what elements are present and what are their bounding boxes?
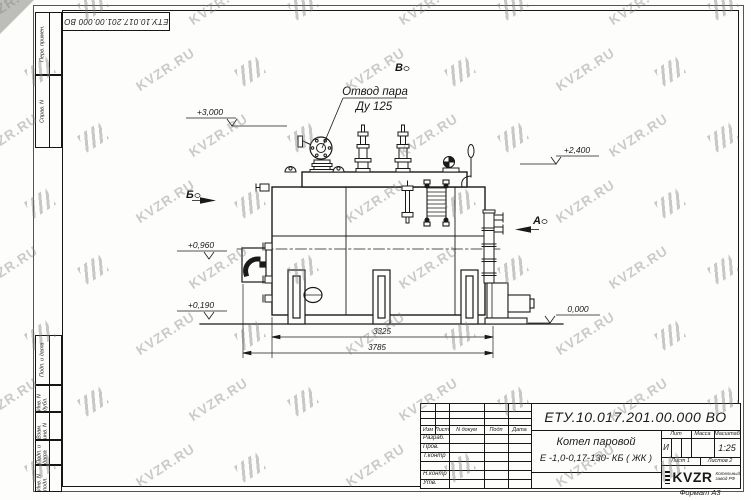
elevation-mark-0190 <box>177 311 227 319</box>
tb-row-nkontr: Н.контр <box>423 471 447 477</box>
tb-col-ndokum: N докум <box>449 425 484 434</box>
elevation-mark-0000 <box>528 315 600 323</box>
section-marker-a <box>515 220 547 233</box>
tb-lit-value: И <box>661 438 671 457</box>
tb-name-line1: Котел паровой <box>531 433 661 451</box>
tb-lit-header: Лит <box>661 430 691 438</box>
tb-row-utv: Утв. <box>423 480 437 486</box>
annotation-text: Отвод пара <box>342 86 408 98</box>
tb-col-izm: Изм <box>421 425 435 434</box>
support-legs <box>288 270 478 324</box>
tb-scale-header: Масштаб <box>714 430 740 438</box>
format-label: Формат А3 <box>630 488 750 497</box>
annotation-text: Ду 125 <box>354 101 393 113</box>
tb-col-data: Дата <box>508 425 531 434</box>
elevation-mark-3000 <box>186 118 287 126</box>
grid-line <box>681 438 682 457</box>
section-letter: Б <box>186 189 194 201</box>
elevation-value: 0,000 <box>567 304 589 314</box>
elevation-value: +3,000 <box>197 107 224 117</box>
steam-outlet-valve <box>298 136 334 172</box>
fan-unit <box>485 283 534 324</box>
tb-col-podp: Подп <box>484 425 508 434</box>
tb-row-razrab: Разраб. <box>423 435 445 441</box>
grid-line <box>421 418 531 419</box>
tb-col-list: Лист <box>435 425 449 434</box>
tb-row-tkontr: Т.контр <box>423 453 446 459</box>
dimension-value: 3785 <box>368 343 386 352</box>
elevation-value: +2,400 <box>564 145 591 155</box>
section-marker-v <box>404 67 409 71</box>
section-marker-b <box>192 194 216 204</box>
elevation-value: +0,960 <box>188 240 215 250</box>
grid-line <box>421 461 531 462</box>
grid-line <box>421 479 531 480</box>
section-letter: А <box>532 215 541 227</box>
tb-name-line2: Е -1,0-0,17-130- КБ ( ЖК ) <box>531 450 661 466</box>
grid-line <box>508 404 509 488</box>
title-block: Изм Лист N докум Подп Дата Разраб. Пров.… <box>420 403 741 489</box>
burner-box <box>242 248 266 282</box>
grid-line <box>484 404 485 488</box>
drawing-sheet-page: { "designation": "ЕТУ.10.017.201.00.000 … <box>0 0 750 500</box>
kvzr-coil-icon <box>665 471 670 484</box>
right-duct <box>482 210 503 283</box>
manhole <box>304 288 322 303</box>
left-nozzles <box>256 184 272 302</box>
tb-row-prov: Пров. <box>423 444 439 450</box>
safety-valve <box>355 125 371 172</box>
grid-line <box>531 472 661 473</box>
tb-mass-header: Масса <box>691 430 714 438</box>
elevation-mark-0960 <box>177 251 227 259</box>
grid-line <box>661 465 740 466</box>
tb-designation: ЕТУ.10.017.201.00.000 ВО <box>531 404 740 430</box>
grid-line <box>421 411 531 412</box>
tb-sheets-total: Листов 2 <box>700 457 740 465</box>
elevation-mark-2400 <box>520 156 599 164</box>
safety-valve <box>395 125 411 172</box>
grid-line <box>449 404 450 488</box>
section-letter: В <box>395 62 403 74</box>
grid-line <box>671 438 672 457</box>
tb-scale-value: 1:25 <box>714 438 740 457</box>
kvzr-logo: KVZR Котельный завод РФ <box>665 468 740 486</box>
dimension-value: 3325 <box>373 327 391 336</box>
kvzr-logo-text: KVZR <box>672 469 712 485</box>
water-gauge-glass <box>402 181 413 223</box>
kvzr-logo-sub2: завод РФ <box>716 477 740 482</box>
tb-sheet-number: Лист 1 <box>661 457 700 465</box>
elevation-value: +0,190 <box>188 300 215 310</box>
